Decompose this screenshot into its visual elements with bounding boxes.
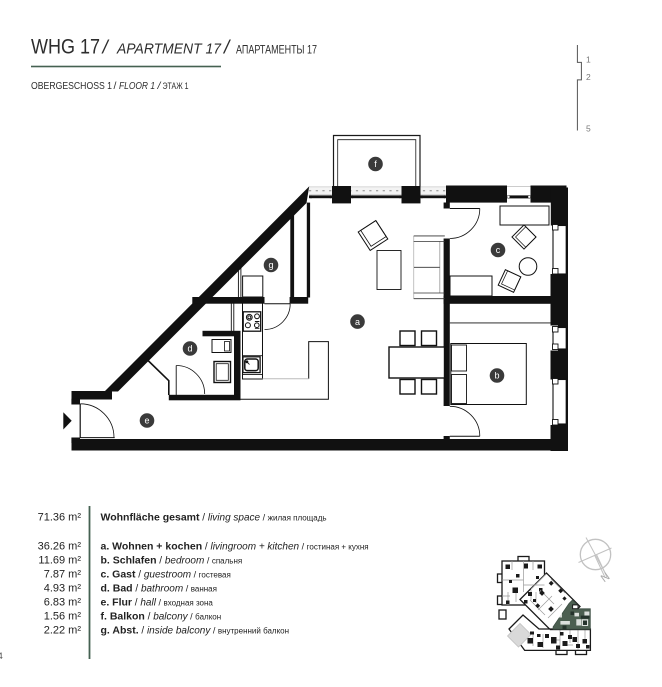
svg-text:7.87 m²: 7.87 m²	[44, 569, 82, 581]
svg-text:c. Gast / guestroom / гостевая: c. Gast / guestroom / гостевая	[101, 569, 231, 581]
svg-text:a. Wohnen + kochen / livingroo: a. Wohnen + kochen / livingroom + kitche…	[101, 541, 369, 553]
svg-text:e: e	[144, 416, 149, 426]
svg-text:1.56 m²: 1.56 m²	[44, 611, 82, 623]
svg-text:/: /	[114, 80, 117, 92]
svg-text:2: 2	[586, 72, 591, 82]
svg-text:b. Schlafen / bedroom / спальн: b. Schlafen / bedroom / спальня	[101, 555, 243, 567]
svg-text:f. Balkon / balcony / балкон: f. Balkon / balcony / балкон	[101, 611, 222, 623]
svg-text:d: d	[187, 344, 192, 354]
svg-text:1: 1	[586, 55, 591, 65]
svg-text:5: 5	[586, 124, 591, 134]
svg-text:e. Flur / hall / входная зона: e. Flur / hall / входная зона	[101, 597, 214, 609]
svg-text:d. Bad / bathroom / ванная: d. Bad / bathroom / ванная	[101, 583, 217, 595]
svg-text:c: c	[496, 245, 501, 255]
svg-text:71.36 m²: 71.36 m²	[38, 512, 82, 524]
svg-text:Wohnfläche gesamt / living spa: Wohnfläche gesamt / living space / жилая…	[101, 512, 327, 524]
svg-text:ЭТАЖ 1: ЭТАЖ 1	[163, 81, 189, 91]
svg-text:2.22 m²: 2.22 m²	[44, 625, 82, 637]
svg-text:4: 4	[0, 651, 3, 662]
svg-text:FLOOR 1: FLOOR 1	[119, 80, 155, 92]
svg-text:g. Abst. / inside balcony / вн: g. Abst. / inside balcony / внутренний б…	[101, 625, 290, 637]
svg-text:11.69 m²: 11.69 m²	[38, 555, 81, 567]
svg-text:b: b	[494, 371, 499, 381]
svg-text:4.93 m²: 4.93 m²	[44, 583, 82, 595]
svg-text:a: a	[355, 317, 360, 327]
svg-text:APARTMENT 17: APARTMENT 17	[116, 41, 222, 58]
svg-text:36.26 m²: 36.26 m²	[38, 541, 82, 553]
svg-text:WHG 17: WHG 17	[31, 36, 100, 59]
svg-text:g: g	[268, 260, 273, 270]
svg-text:АПАРТАМЕНТЫ 17: АПАРТАМЕНТЫ 17	[236, 43, 317, 57]
svg-text:6.83 m²: 6.83 m²	[44, 597, 82, 609]
svg-text:OBERGESCHOSS 1: OBERGESCHOSS 1	[31, 80, 112, 92]
